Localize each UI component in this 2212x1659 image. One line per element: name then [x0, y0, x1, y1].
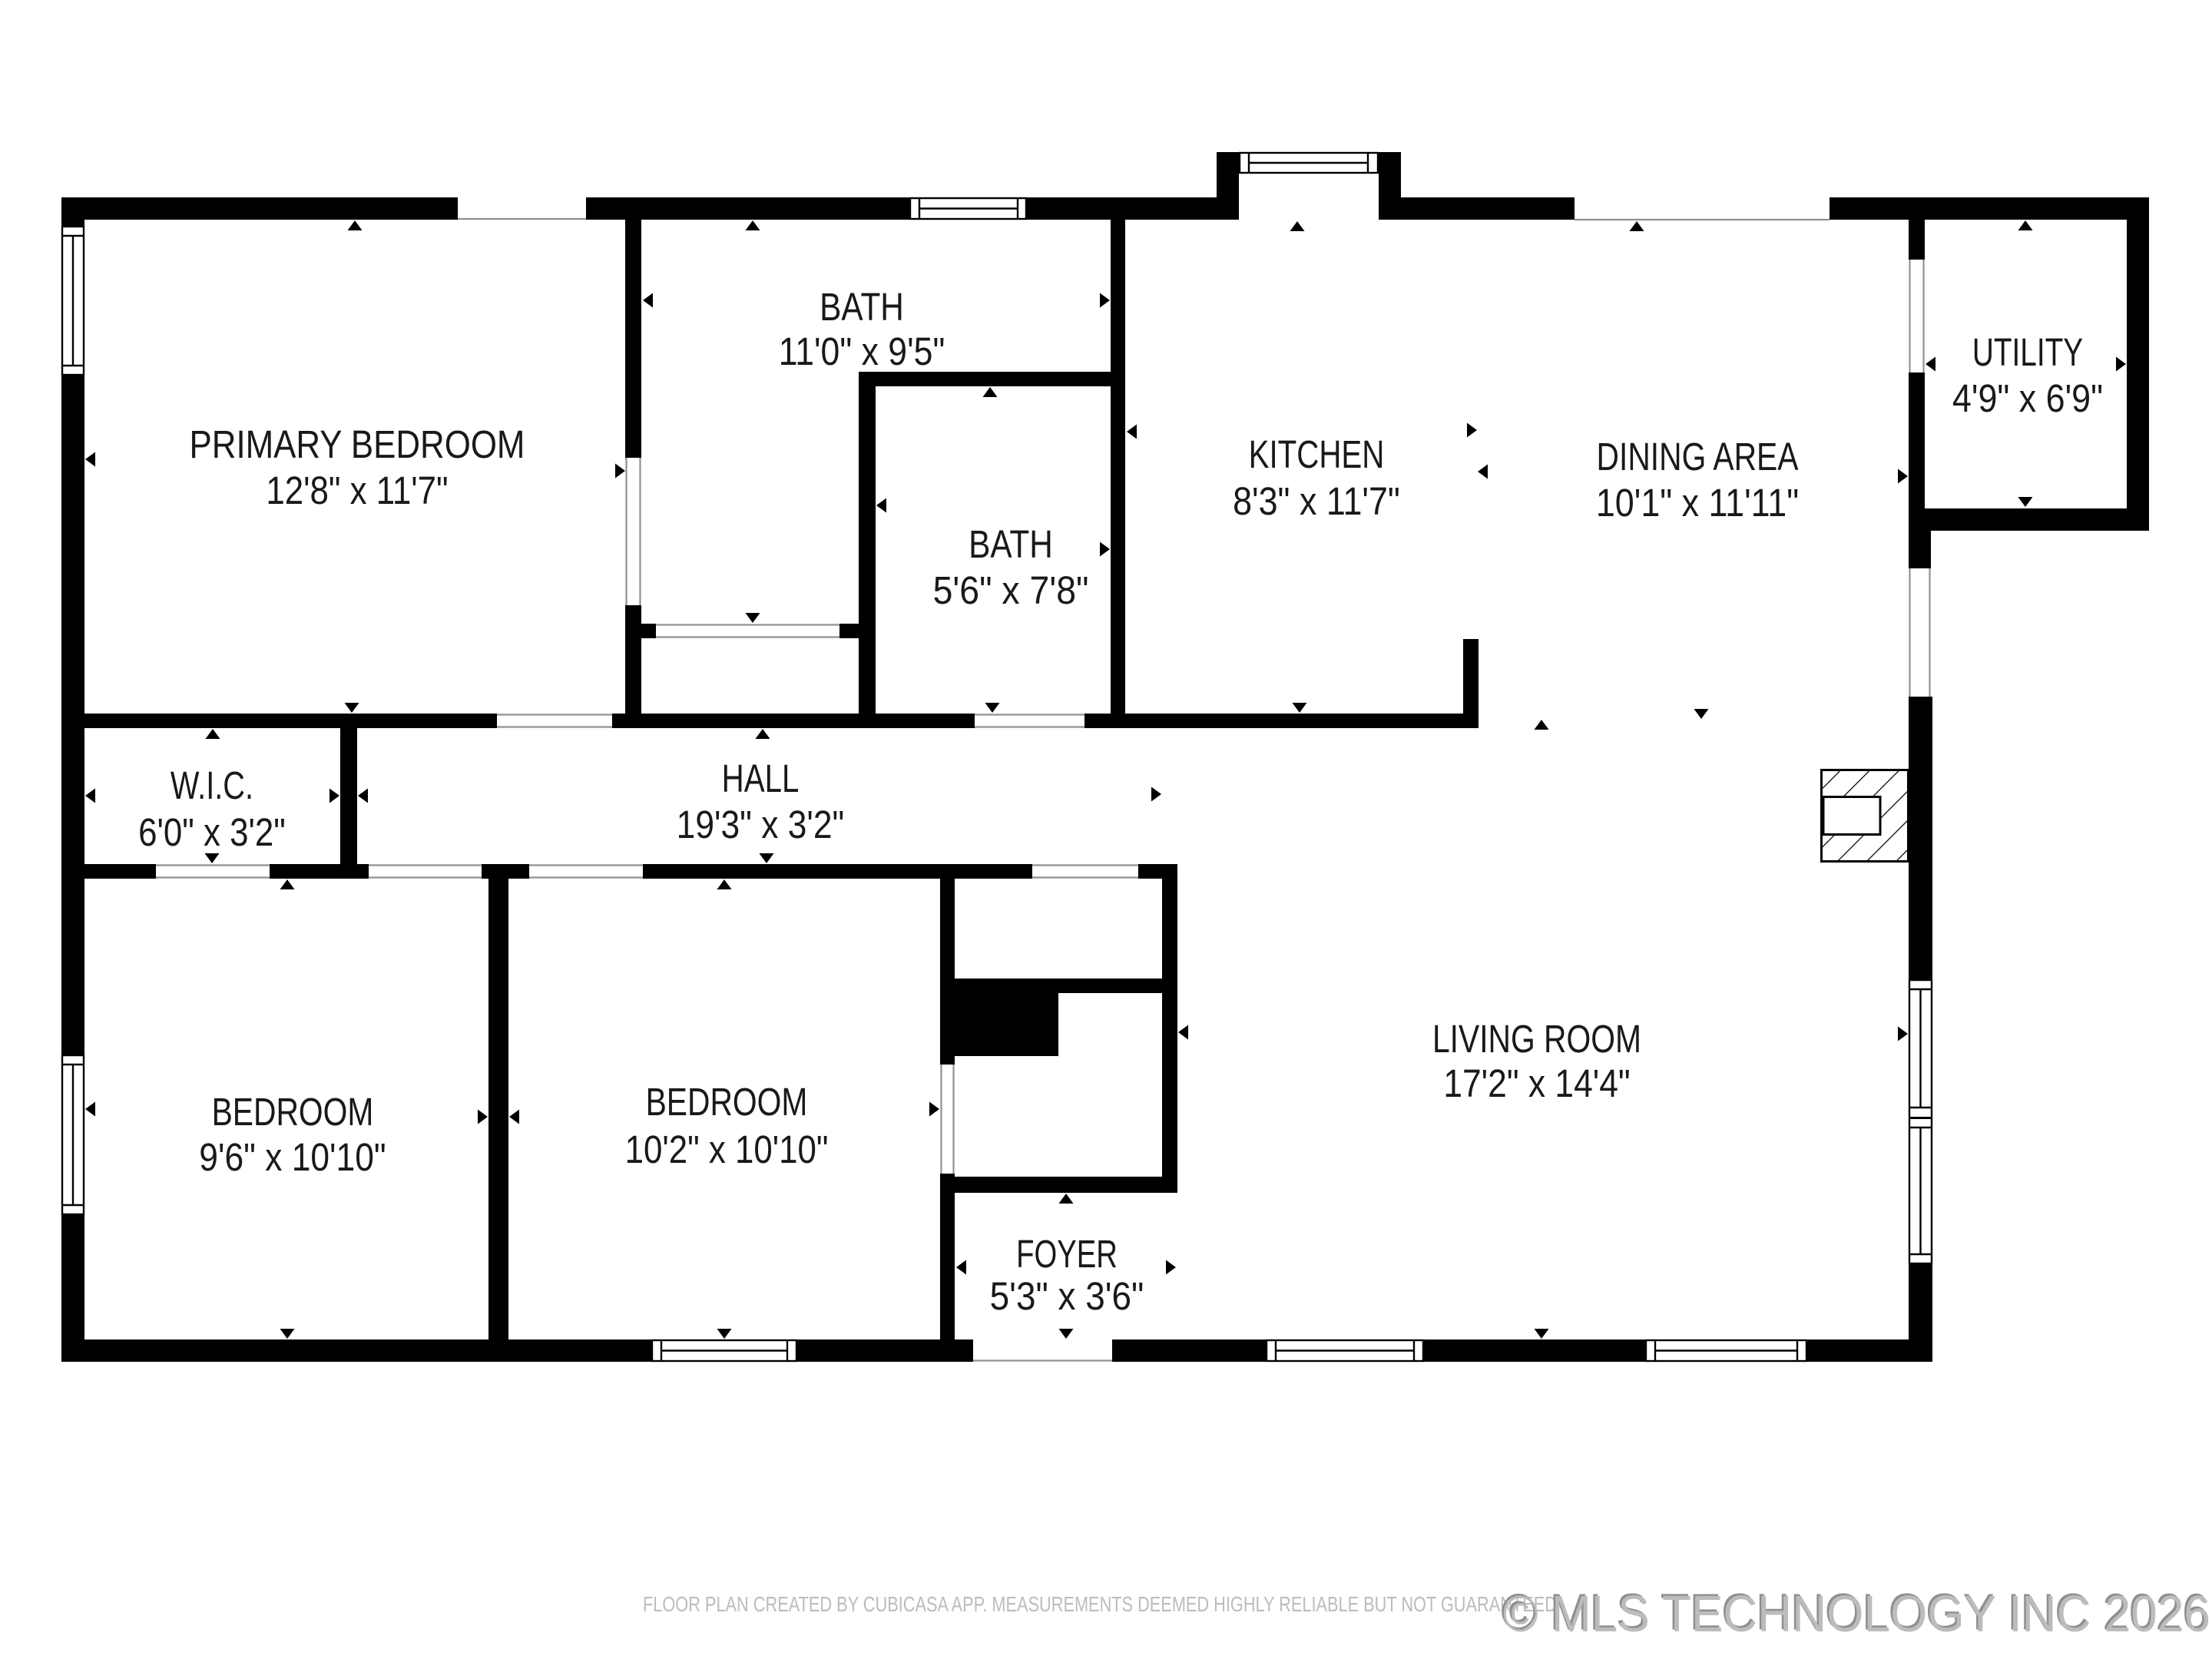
svg-text:6'0" x 3'2": 6'0" x 3'2" — [138, 811, 286, 855]
svg-text:DINING AREA: DINING AREA — [1597, 435, 1799, 478]
svg-text:UTILITY: UTILITY — [1972, 330, 2083, 374]
svg-text:© MLS TECHNOLOGY INC 2026: © MLS TECHNOLOGY INC 2026 — [1503, 1584, 2210, 1643]
svg-text:BATH: BATH — [820, 285, 904, 329]
svg-text:KITCHEN: KITCHEN — [1249, 432, 1385, 476]
svg-text:17'2" x 14'4": 17'2" x 14'4" — [1443, 1062, 1630, 1106]
svg-text:10'2" x 10'10": 10'2" x 10'10" — [625, 1128, 829, 1172]
svg-text:5'3" x 3'6": 5'3" x 3'6" — [990, 1275, 1144, 1319]
svg-text:9'6" x 10'10": 9'6" x 10'10" — [199, 1136, 386, 1180]
svg-text:12'8" x 11'7": 12'8" x 11'7" — [266, 469, 448, 513]
svg-text:BEDROOM: BEDROOM — [212, 1090, 374, 1134]
svg-text:19'3" x 3'2": 19'3" x 3'2" — [677, 803, 845, 847]
svg-text:HALL: HALL — [722, 756, 800, 800]
svg-text:5'6" x 7'8": 5'6" x 7'8" — [933, 569, 1089, 612]
svg-text:4'9" x 6'9": 4'9" x 6'9" — [1952, 377, 2103, 420]
svg-text:FLOOR PLAN CREATED BY CUBICASA: FLOOR PLAN CREATED BY CUBICASA APP. MEAS… — [643, 1592, 1557, 1616]
svg-text:8'3" x 11'7": 8'3" x 11'7" — [1233, 480, 1400, 523]
svg-text:BATH: BATH — [969, 522, 1053, 566]
svg-text:FOYER: FOYER — [1016, 1232, 1118, 1277]
svg-text:PRIMARY BEDROOM: PRIMARY BEDROOM — [190, 423, 525, 467]
svg-text:10'1" x 11'11": 10'1" x 11'11" — [1596, 482, 1799, 525]
svg-text:LIVING ROOM: LIVING ROOM — [1432, 1017, 1641, 1061]
svg-text:BEDROOM: BEDROOM — [646, 1080, 808, 1124]
svg-text:11'0" x 9'5": 11'0" x 9'5" — [779, 330, 945, 373]
svg-text:W.I.C.: W.I.C. — [171, 763, 253, 807]
